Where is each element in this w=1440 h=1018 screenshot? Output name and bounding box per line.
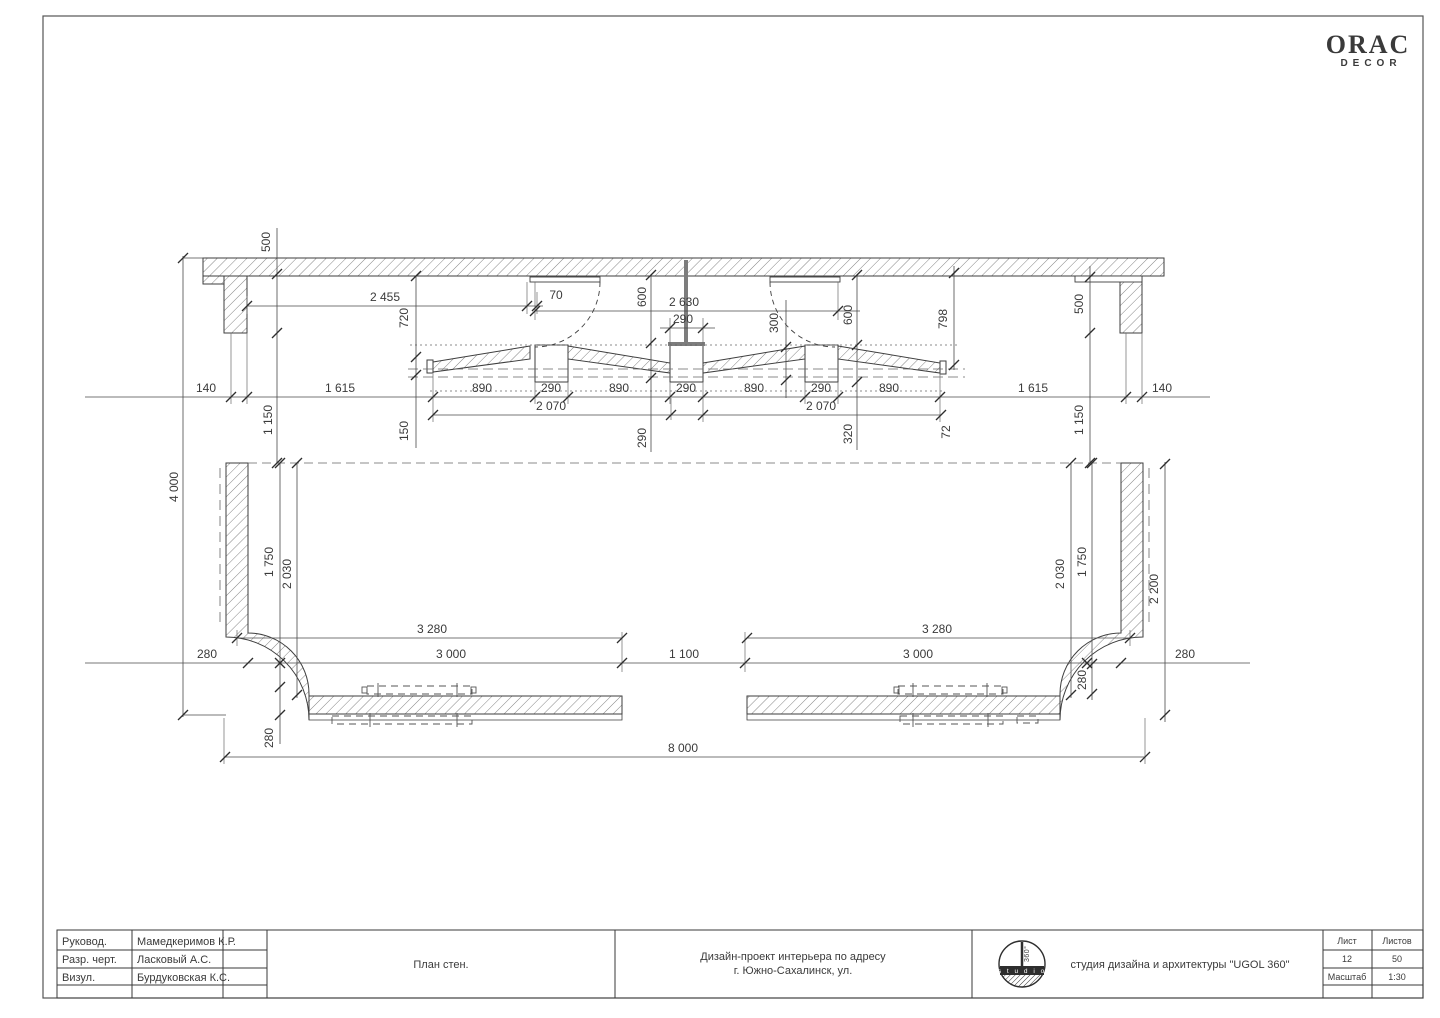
dimension-label: 1 615 <box>325 381 355 395</box>
dimension-label: 1 100 <box>669 647 699 661</box>
dimension-label: 280 <box>1175 647 1195 661</box>
dimension-label: 72 <box>939 425 953 439</box>
project-address-line2: г. Южно-Сахалинск, ул. <box>734 965 853 977</box>
dimension-label: 3 000 <box>436 647 466 661</box>
dimension-label: 290 <box>673 312 693 326</box>
studio-stamp-logo: 360° s t u d i o <box>998 941 1046 988</box>
dimension-label: 70 <box>549 288 563 302</box>
role-label-3: Визул. <box>62 972 95 984</box>
page-frame <box>43 16 1423 998</box>
bottom-wall-left-finish <box>309 714 622 720</box>
dimension-label: 500 <box>1072 294 1086 314</box>
studio-name: студия дизайна и архитектуры "UGOL 360" <box>1070 959 1289 971</box>
sheet-label: Лист <box>1337 936 1357 946</box>
dimension-label: 2 630 <box>669 295 699 309</box>
dimension-label: 2 070 <box>536 399 566 413</box>
door-swing-arc-left <box>535 282 600 347</box>
top-wall <box>203 258 1164 276</box>
bottom-wall-right <box>747 696 1060 714</box>
stamp-studio-label: s t u d i o <box>998 968 1046 975</box>
role-value-2: Ласковый А.С. <box>137 954 211 966</box>
bottom-wall-left <box>309 696 622 714</box>
taper-end-cap-left <box>427 360 433 373</box>
door-leaf-left <box>530 277 600 282</box>
dimension-label: 890 <box>744 381 764 395</box>
bottom-wall-right-finish <box>747 714 1060 720</box>
pier-3 <box>805 345 838 382</box>
right-pier <box>1120 276 1142 333</box>
dimension-label: 3 000 <box>903 647 933 661</box>
dimension-label: 890 <box>472 381 492 395</box>
dimension-label: 1 150 <box>1072 405 1086 435</box>
dimension-label: 600 <box>635 287 649 307</box>
dimension-labels: 5002 455707206002 6302903006007985001401… <box>167 232 1195 755</box>
dimension-label: 2 455 <box>370 290 400 304</box>
dimension-label: 2 030 <box>280 559 294 589</box>
dimension-label: 720 <box>397 308 411 328</box>
dimension-label: 500 <box>259 232 273 252</box>
tapered-wall-1 <box>433 346 530 372</box>
scale-label: Масштаб <box>1328 972 1367 982</box>
sheets-total: 50 <box>1392 954 1402 964</box>
project-address-line1: Дизайн-проект интерьера по адресу <box>700 951 886 963</box>
role-value-1: Мамедкеримов К.Р. <box>137 936 236 948</box>
top-wall-left-step <box>203 276 224 284</box>
sheets-label: Листов <box>1382 936 1411 946</box>
dimension-label: 1 615 <box>1018 381 1048 395</box>
lower-right-wall <box>1060 463 1143 720</box>
dimension-label: 150 <box>397 421 411 441</box>
dimension-label: 320 <box>841 424 855 444</box>
dimension-label: 600 <box>841 305 855 325</box>
scale-value: 1:30 <box>1388 972 1406 982</box>
dimension-label: 3 280 <box>417 622 447 636</box>
orac-logo: ORAC DECOR <box>1326 30 1411 69</box>
dimension-label: 280 <box>262 728 276 748</box>
dimension-ticks <box>178 253 1170 762</box>
radiator-cap <box>362 687 367 693</box>
door-leaf-right <box>770 277 840 282</box>
dimension-label: 2 200 <box>1147 574 1161 604</box>
role-label-2: Разр. черт. <box>62 954 117 966</box>
left-pier <box>224 276 247 333</box>
dimension-label: 1 750 <box>1075 547 1089 577</box>
floor-plan-canvas: ORAC DECOR <box>0 0 1440 1018</box>
dimension-label: 290 <box>676 381 696 395</box>
dimension-label: 1 150 <box>261 405 275 435</box>
stamp-360-label: 360° <box>1023 946 1031 962</box>
dimension-label: 290 <box>541 381 561 395</box>
dimension-label: 280 <box>197 647 217 661</box>
pier-1 <box>535 345 568 382</box>
dimension-label: 8 000 <box>668 741 698 755</box>
dimension-label: 798 <box>936 309 950 329</box>
brand-name: ORAC <box>1326 30 1411 59</box>
dimension-label: 3 280 <box>922 622 952 636</box>
brand-sub: DECOR <box>1340 58 1401 69</box>
radiator-symbol <box>1017 716 1038 723</box>
role-label-1: Руковод. <box>62 936 107 948</box>
dimension-label: 290 <box>811 381 831 395</box>
lower-left-wall <box>226 463 309 720</box>
dimension-label: 890 <box>879 381 899 395</box>
dimension-label: 300 <box>767 313 781 333</box>
radiator-symbol <box>367 686 472 694</box>
pier-2 <box>670 345 703 382</box>
taper-end-cap-right <box>940 361 946 374</box>
title-block-text: Руковод. Мамедкеримов К.Р. Разр. черт. Л… <box>62 936 1412 984</box>
dimension-label: 2 070 <box>806 399 836 413</box>
dimension-label: 4 000 <box>167 472 181 502</box>
drawing-title: План стен. <box>413 959 468 971</box>
dimension-label: 890 <box>609 381 629 395</box>
role-value-3: Бурдуковская К.С. <box>137 972 230 984</box>
dimension-label: 1 750 <box>262 547 276 577</box>
dimension-label: 140 <box>1152 381 1172 395</box>
sheet-number: 12 <box>1342 954 1352 964</box>
drawing-sheet: ORAC DECOR <box>0 0 1440 1018</box>
dimension-label: 290 <box>635 428 649 448</box>
dimension-label: 2 030 <box>1053 559 1067 589</box>
stamp-hatch-segment <box>1001 974 1043 988</box>
dimension-label: 140 <box>196 381 216 395</box>
dimension-label: 280 <box>1075 670 1089 690</box>
doors <box>530 276 1142 347</box>
